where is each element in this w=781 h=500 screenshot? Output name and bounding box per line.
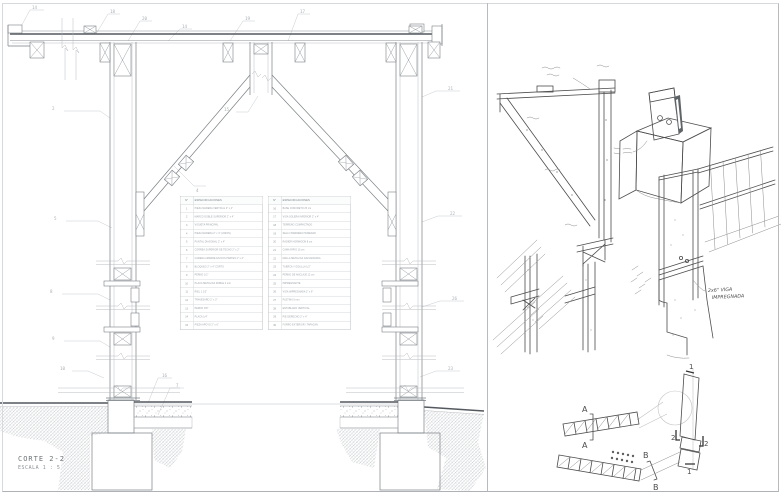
drawing-sheet: N°ESPECIFICACIONES1PIEZA MADERA VERTICAL… xyxy=(0,0,781,500)
panel-divider xyxy=(487,3,488,491)
sheet-border xyxy=(2,3,779,492)
